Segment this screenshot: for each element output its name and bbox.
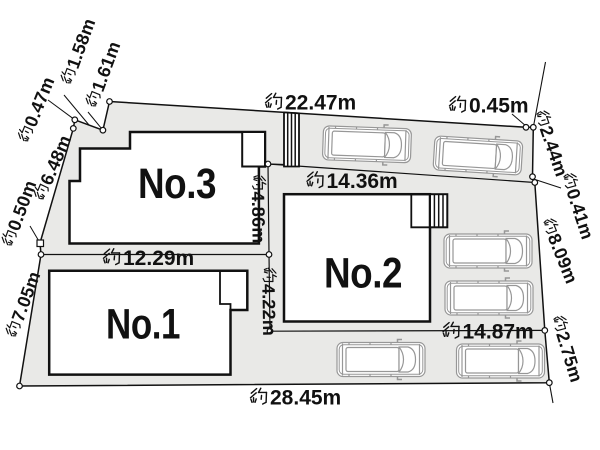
svg-text:0.50m: 0.50m: [4, 178, 41, 234]
svg-text:1.61m: 1.61m: [88, 39, 125, 95]
svg-text:2.44m: 2.44m: [536, 123, 572, 179]
svg-text:22.47m: 22.47m: [285, 92, 356, 115]
svg-text:8.09m: 8.09m: [544, 231, 582, 287]
svg-text:14.87m: 14.87m: [463, 321, 534, 344]
svg-text:4.22m: 4.22m: [258, 284, 279, 336]
svg-text:No.2: No.2: [324, 250, 402, 297]
svg-text:No.3: No.3: [138, 161, 216, 208]
svg-text:4.86m: 4.86m: [248, 191, 269, 243]
svg-text:28.45m: 28.45m: [270, 387, 341, 410]
svg-text:No.1: No.1: [106, 301, 180, 348]
svg-text:0.45m: 0.45m: [469, 95, 529, 118]
svg-text:12.29m: 12.29m: [123, 247, 194, 270]
svg-text:1.58m: 1.58m: [63, 16, 100, 72]
svg-text:0.47m: 0.47m: [21, 74, 59, 130]
svg-text:2.75m: 2.75m: [552, 329, 586, 385]
svg-text:14.36m: 14.36m: [327, 170, 398, 193]
svg-text:0.41m: 0.41m: [562, 186, 597, 242]
